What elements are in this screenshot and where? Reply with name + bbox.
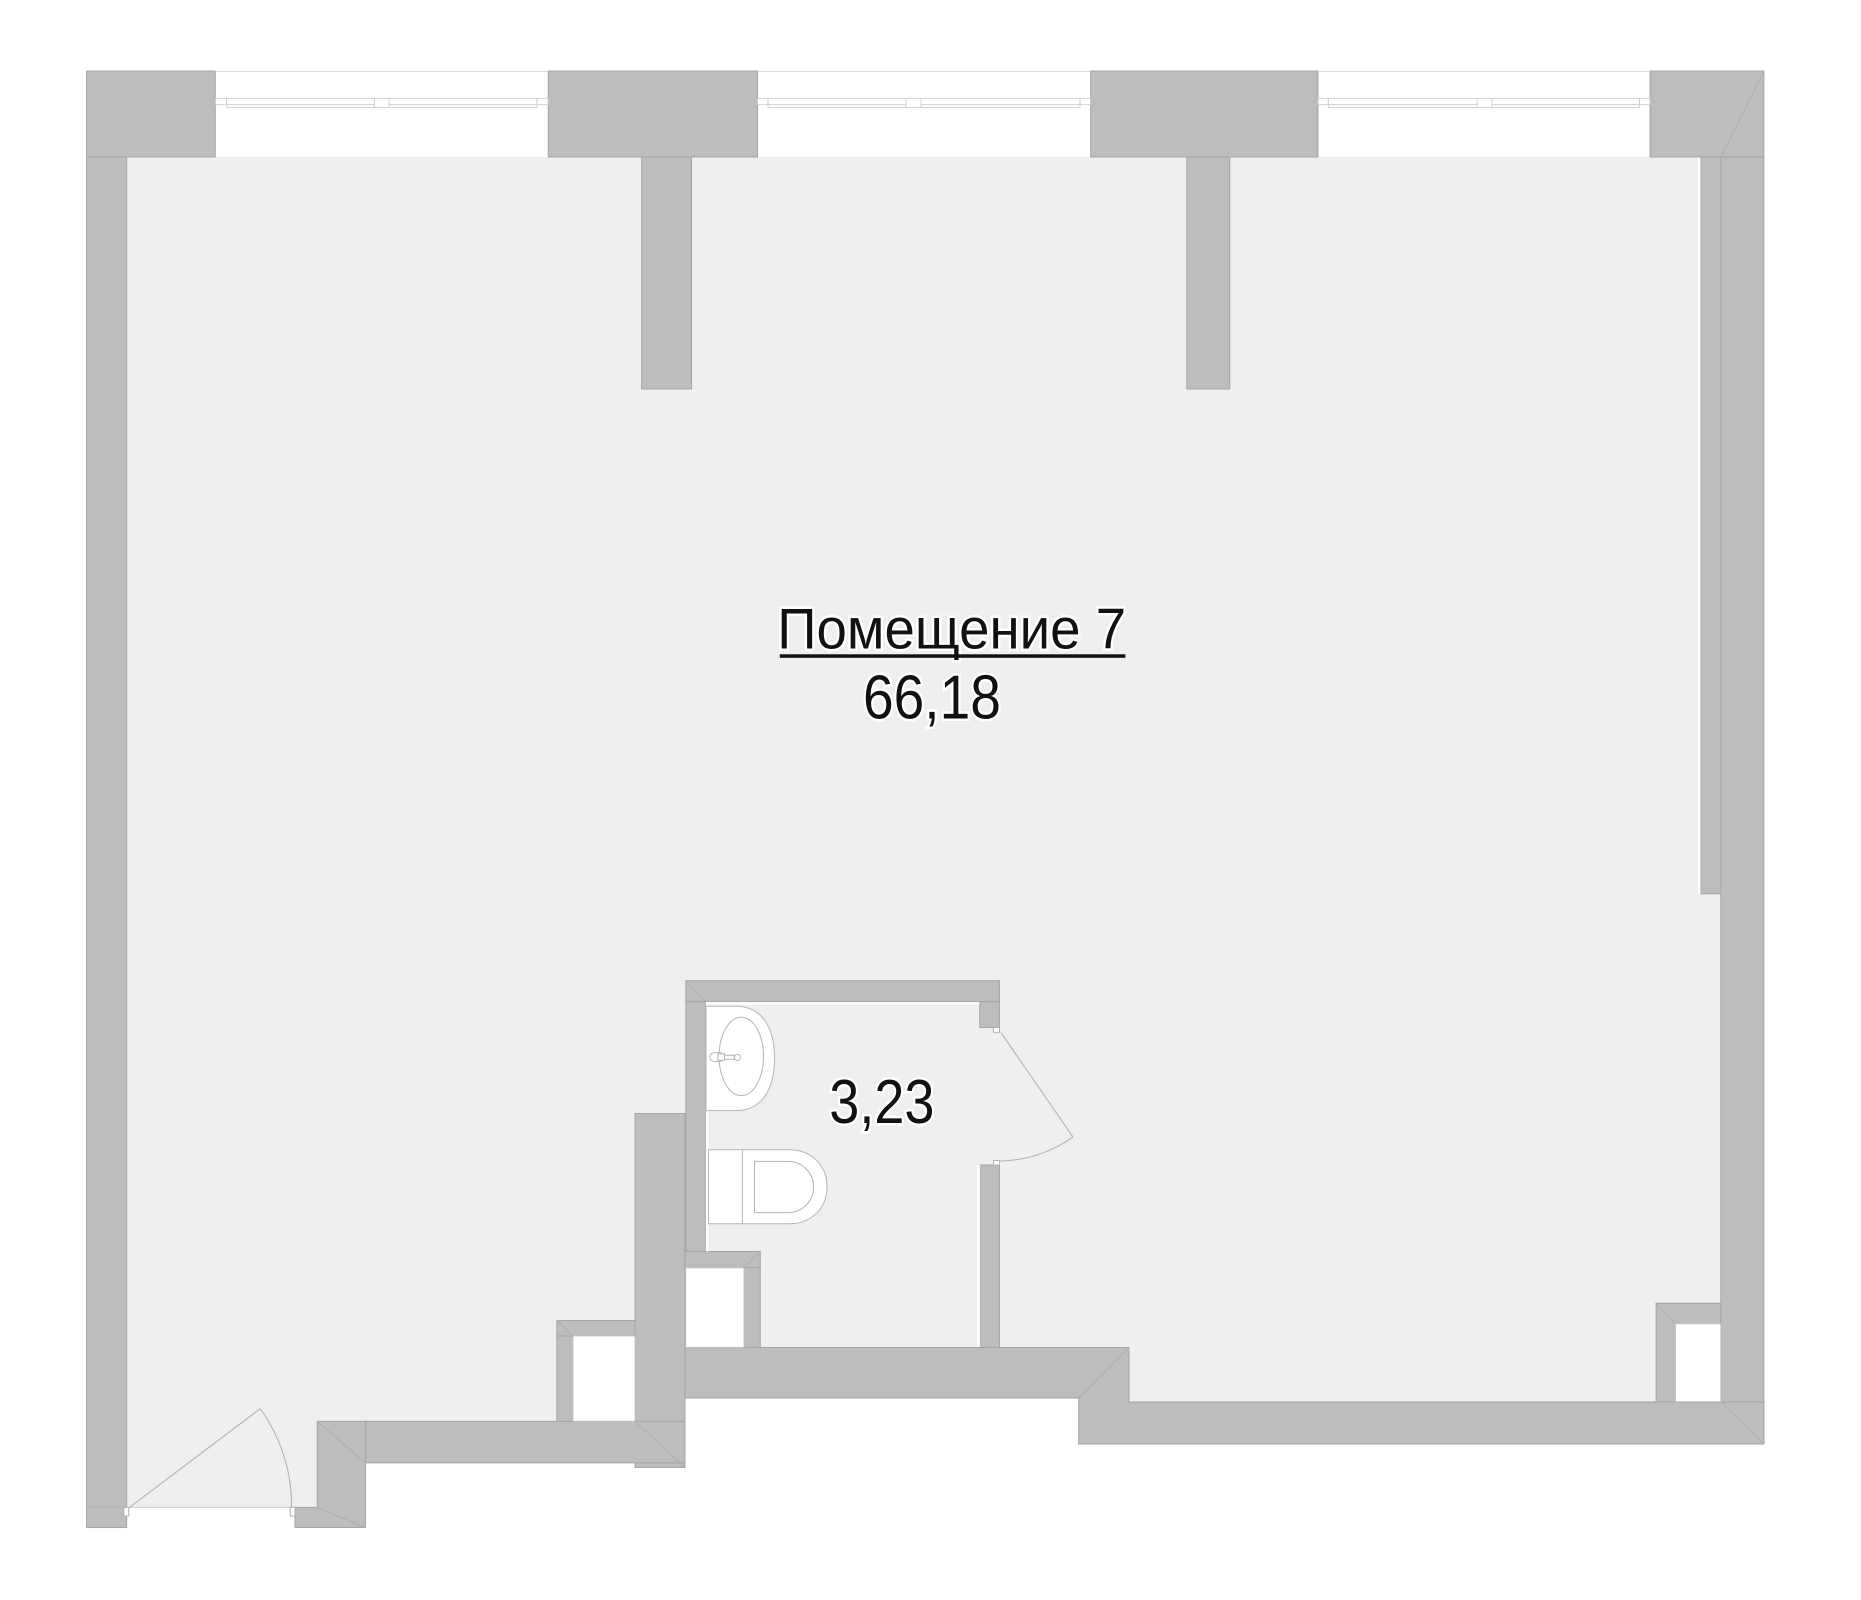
svg-text:66,18: 66,18 [863, 664, 1001, 733]
svg-text:Помещение 7: Помещение 7 [777, 598, 1126, 662]
svg-text:3,23: 3,23 [829, 1068, 934, 1137]
